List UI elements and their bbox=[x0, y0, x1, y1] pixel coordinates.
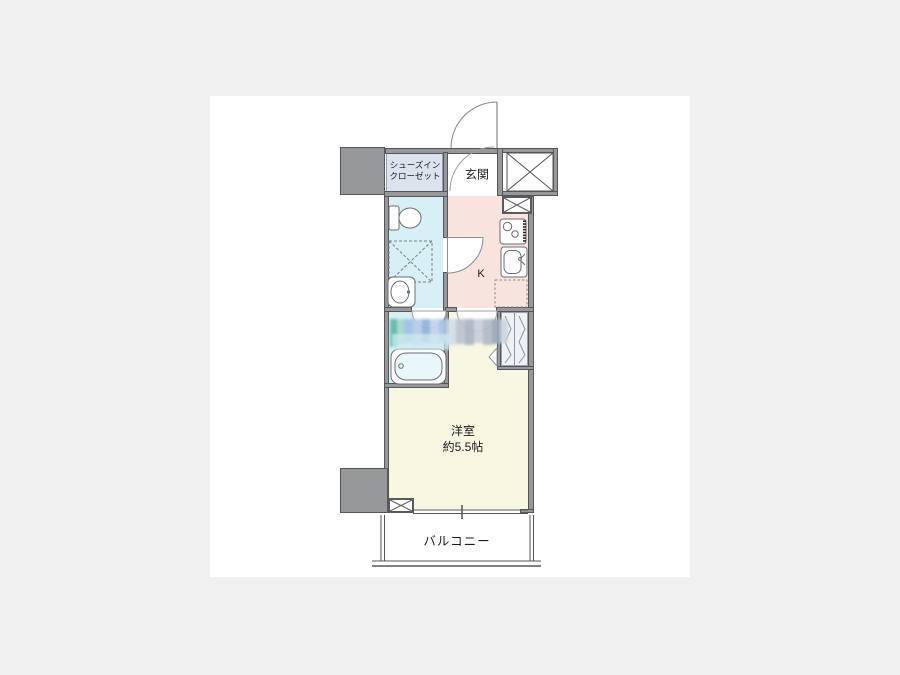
floorplan-image: シューズイン クローゼット 玄関 K 洋室 約5.5帖 バルコニー bbox=[0, 0, 900, 675]
western-room-name: 洋室 bbox=[443, 423, 484, 439]
elevator-shaft-icon bbox=[507, 153, 553, 191]
entrance-door-icon bbox=[451, 102, 497, 148]
balcony-label: バルコニー bbox=[423, 531, 490, 550]
entrance-label: 玄関 bbox=[465, 166, 489, 183]
window-icon bbox=[413, 505, 528, 519]
pipe-space-icon bbox=[503, 197, 531, 213]
refrigerator-space-icon bbox=[495, 280, 527, 307]
watermark-lower-block bbox=[392, 334, 450, 350]
shoe-closet-label: シューズイン クローゼット bbox=[389, 160, 440, 182]
toilet-icon bbox=[389, 206, 421, 230]
washbasin-icon bbox=[388, 277, 415, 307]
kitchen-sink-icon bbox=[501, 247, 527, 277]
shoe-closet-label-line2: クローゼット bbox=[389, 171, 440, 182]
washing-machine-space-icon bbox=[389, 241, 432, 282]
pipe-space-bottom-icon bbox=[389, 499, 413, 512]
kitchen-label: K bbox=[477, 268, 484, 280]
western-room-label: 洋室 約5.5帖 bbox=[443, 423, 484, 455]
gas-stove-icon bbox=[500, 219, 526, 244]
western-room-size: 約5.5帖 bbox=[443, 439, 484, 455]
shoe-closet-label-line1: シューズイン bbox=[389, 160, 440, 171]
bathtub-icon bbox=[391, 349, 446, 384]
